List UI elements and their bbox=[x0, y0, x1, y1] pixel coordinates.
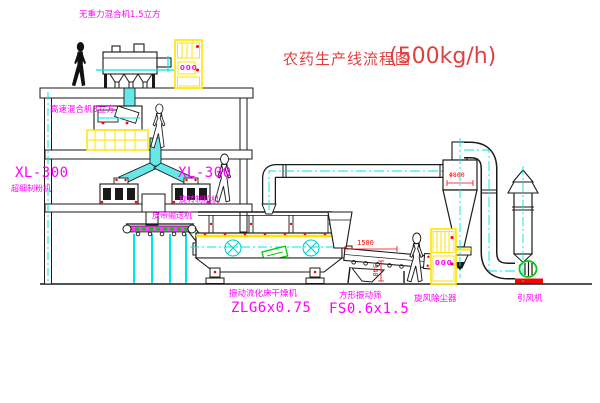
belt-conveyor bbox=[123, 224, 196, 283]
control-cabinet-top bbox=[175, 40, 202, 88]
person-icon bbox=[215, 154, 230, 202]
granulator-discharge-pipe bbox=[142, 194, 165, 225]
cad-flow-diagram: 无重力混合机1.5立方 农药生产线流程图 (500kg/h) 高速混合机3立方 … bbox=[0, 0, 600, 403]
exhaust-duct bbox=[262, 164, 452, 214]
high-speed-mixer bbox=[87, 106, 148, 150]
fluid-bed-dryer bbox=[190, 212, 352, 284]
person-icon bbox=[72, 42, 86, 86]
control-cabinet-bottom bbox=[431, 229, 456, 284]
granulator-left bbox=[100, 178, 138, 204]
granulator-right bbox=[172, 178, 210, 204]
drawing-layer bbox=[0, 0, 600, 403]
y-chute bbox=[119, 138, 192, 183]
